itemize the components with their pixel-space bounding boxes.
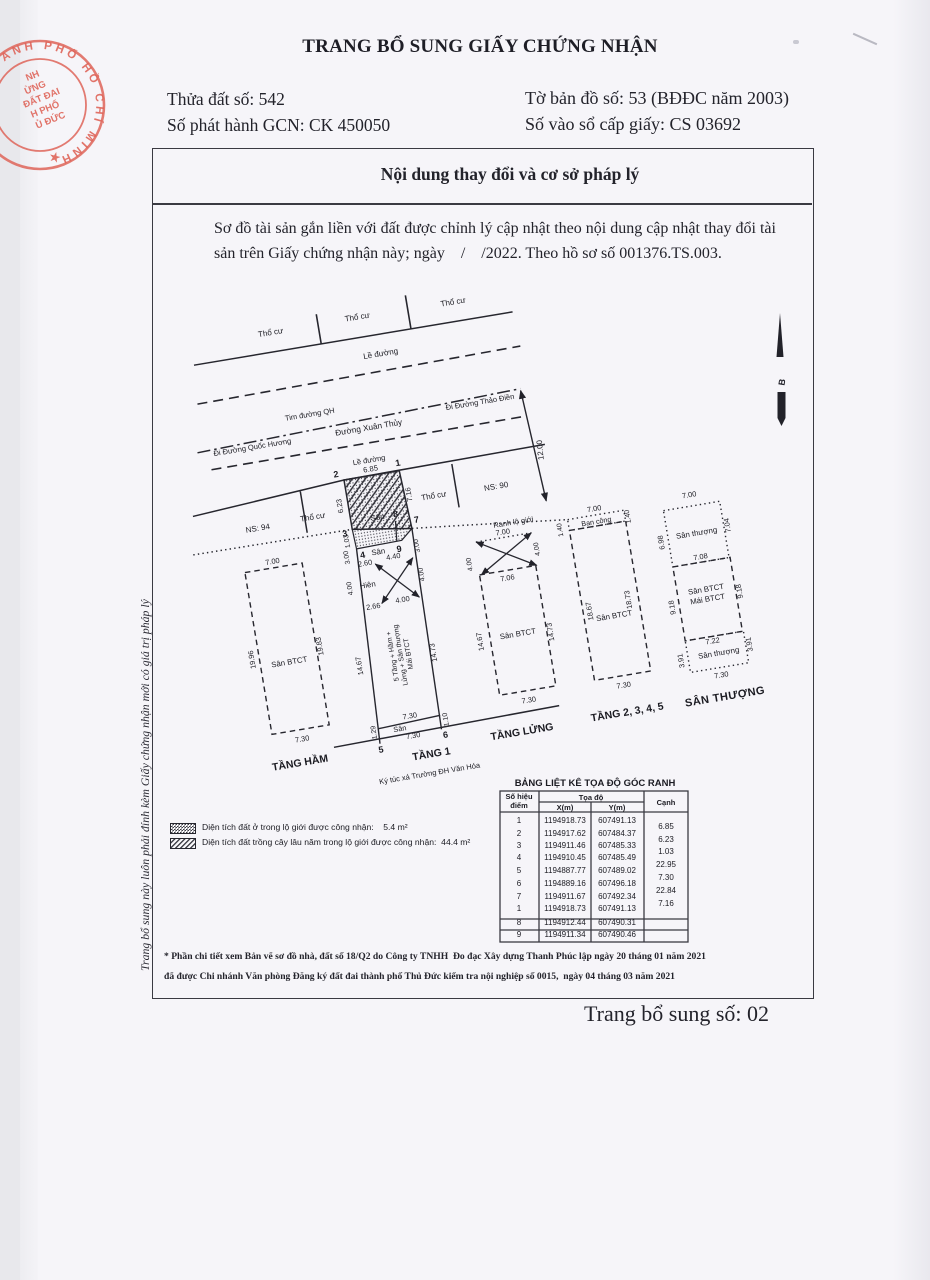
svg-text:607491.13: 607491.13 — [598, 904, 636, 913]
svg-text:7: 7 — [517, 892, 522, 901]
svg-text:1194911.46: 1194911.46 — [544, 841, 586, 850]
svg-text:1194918.73: 1194918.73 — [544, 816, 586, 825]
svg-text:4: 4 — [517, 853, 522, 862]
svg-text:607485.49: 607485.49 — [598, 853, 636, 862]
svg-text:điểm: điểm — [510, 801, 528, 810]
svg-text:607496.18: 607496.18 — [598, 879, 636, 888]
svg-text:607490.31: 607490.31 — [598, 918, 636, 927]
svg-text:2: 2 — [517, 829, 522, 838]
svg-text:7.30: 7.30 — [658, 873, 674, 882]
svg-text:607490.46: 607490.46 — [598, 930, 636, 939]
svg-text:3: 3 — [517, 841, 522, 850]
svg-text:1194917.62: 1194917.62 — [544, 829, 586, 838]
svg-text:6.85: 6.85 — [658, 822, 674, 831]
svg-text:1.03: 1.03 — [658, 847, 674, 856]
svg-text:Y(m): Y(m) — [609, 803, 626, 812]
svg-text:8: 8 — [517, 918, 522, 927]
svg-text:1194912.44: 1194912.44 — [544, 918, 586, 927]
svg-text:1194889.16: 1194889.16 — [544, 879, 586, 888]
svg-text:22.84: 22.84 — [656, 886, 677, 895]
svg-text:Tọa độ: Tọa độ — [579, 793, 604, 802]
svg-text:Số hiệu: Số hiệu — [505, 792, 533, 801]
svg-text:7.16: 7.16 — [658, 899, 674, 908]
svg-text:1194911.34: 1194911.34 — [544, 930, 586, 939]
svg-text:607492.34: 607492.34 — [598, 892, 636, 901]
svg-text:607484.37: 607484.37 — [598, 829, 636, 838]
svg-text:22.95: 22.95 — [656, 860, 677, 869]
svg-text:5: 5 — [517, 866, 522, 875]
svg-text:607485.33: 607485.33 — [598, 841, 636, 850]
svg-text:1194887.77: 1194887.77 — [544, 866, 586, 875]
svg-text:Cạnh: Cạnh — [657, 798, 676, 807]
svg-text:1194918.73: 1194918.73 — [544, 904, 586, 913]
svg-text:1: 1 — [517, 816, 522, 825]
svg-text:9: 9 — [517, 930, 522, 939]
svg-text:607489.02: 607489.02 — [598, 866, 636, 875]
svg-text:6: 6 — [517, 879, 522, 888]
svg-text:607491.13: 607491.13 — [598, 816, 636, 825]
svg-text:X(m): X(m) — [557, 803, 574, 812]
svg-text:1194910.45: 1194910.45 — [544, 853, 586, 862]
svg-text:1: 1 — [517, 904, 522, 913]
svg-text:1194911.67: 1194911.67 — [544, 892, 586, 901]
svg-text:6.23: 6.23 — [658, 835, 674, 844]
